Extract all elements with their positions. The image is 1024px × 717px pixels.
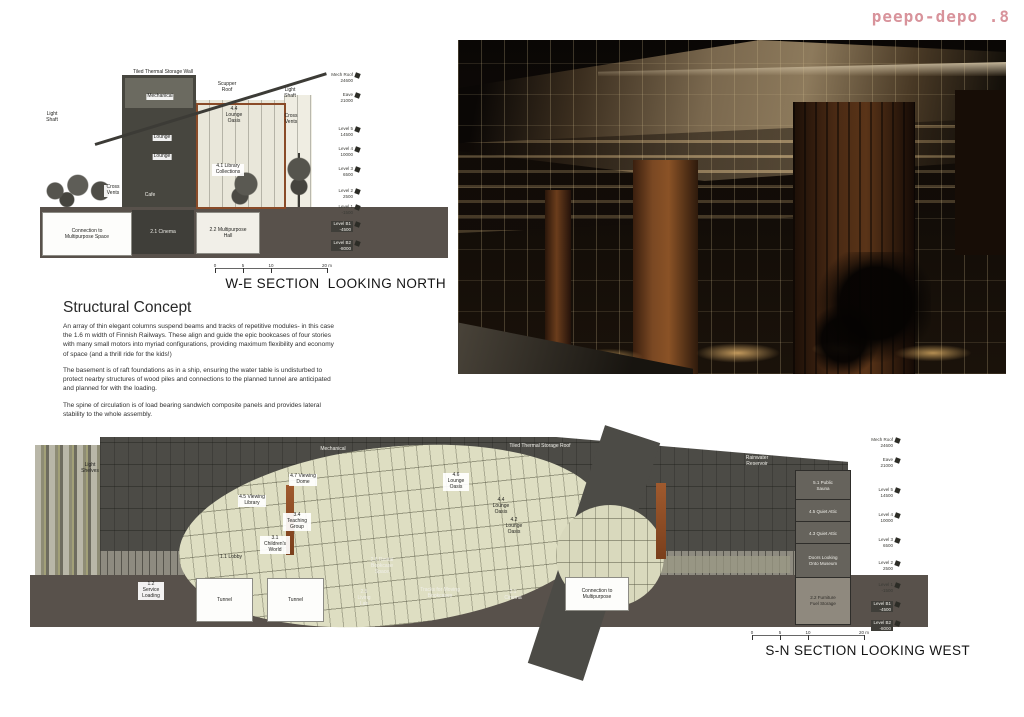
sn-scale-bar: 051020 m — [752, 628, 882, 641]
level-label: Level B1-4500 — [871, 601, 893, 612]
we-level-ladder: Mech Roof24600Eave21000Level 514500Level… — [300, 68, 360, 258]
level-marker-icon — [894, 582, 900, 588]
label-connection-multipurpose: Connection to Multipurpose Space — [61, 228, 113, 240]
we-scale-bar: 051020 m — [215, 261, 345, 274]
label-furniture-storage: 2.2 Furniture Fuel Storage — [806, 595, 840, 606]
level-marker-mech-roof: Mech Roof24600 — [871, 437, 900, 448]
level-marker-level-5: Level 514500 — [878, 487, 900, 498]
level-marker-icon — [894, 487, 900, 493]
label-multipurpose-hall: 2.2 Multipurpose Hall — [206, 227, 250, 239]
sn-tunnel-box-1: Tunnel — [196, 578, 253, 622]
label-light-shaft-right: Light Shaft — [282, 88, 298, 100]
level-marker-icon — [894, 537, 900, 543]
label-childrens-world: 3.1 Children's World — [260, 536, 290, 554]
structural-paragraph-1: An array of thin elegant columns suspend… — [63, 322, 337, 359]
level-label: Level 514500 — [878, 487, 893, 498]
sn-rust-strip-right — [656, 483, 666, 559]
project-logo: peepo-depo .8 — [872, 7, 1010, 26]
level-label: Level 1-1500 — [878, 582, 893, 593]
scale-tick-label: 20 m — [859, 630, 869, 635]
level-marker-icon — [354, 166, 360, 172]
label-scupper-roof: Scupper Roof — [216, 82, 238, 94]
we-basement-connection-box: Connection to Multipurpose Space — [42, 212, 132, 256]
level-marker-icon — [354, 126, 360, 132]
label-thermal-wall: Tiled Thermal Storage Wall — [133, 70, 193, 76]
scale-tick: 5 — [780, 635, 781, 640]
label-lounge-oasis-1: 4.6 Lounge Oasis — [443, 473, 469, 491]
sn-tunnel-box-2: Tunnel — [267, 578, 324, 622]
scale-tick: 20 m — [327, 268, 328, 273]
level-marker-level-3: Level 36500 — [338, 166, 360, 177]
level-label: Eave21000 — [340, 92, 353, 103]
structural-paragraph-2: The basement is of raft foundations as i… — [63, 366, 337, 394]
scale-tick-label: 10 — [268, 263, 273, 268]
level-marker-icon — [354, 72, 360, 78]
label-tracks-bookcases: Tracks for Moving Bookcases — [419, 588, 461, 600]
scale-tick-label: 20 m — [322, 263, 332, 268]
level-label: Level 1-1500 — [338, 204, 353, 215]
scale-tick-label: 0 — [214, 263, 217, 268]
label-lounge-2: Lounge — [153, 154, 172, 160]
label-mechanical-sn: Mechanical — [320, 447, 345, 453]
level-marker-icon — [894, 601, 900, 607]
level-label: Level 36500 — [878, 537, 893, 548]
photo-right-dark-panel — [955, 90, 1006, 255]
level-label: Eave21000 — [880, 457, 893, 468]
level-label: Level B1-4500 — [331, 221, 353, 232]
structural-paragraph-3: The spine of circulation is of load bear… — [63, 401, 337, 419]
label-lounge-oasis-3: 4.2 Lounge Oasis — [502, 518, 526, 536]
label-rainwater-reservoir: Rainwater Reservoir — [740, 456, 774, 468]
level-marker-icon — [354, 188, 360, 194]
label-library-collections: 4.1 Library Collections — [212, 164, 244, 176]
level-marker-level-b2: Level B2-8000 — [331, 240, 360, 251]
level-label: Level 410000 — [878, 512, 893, 523]
label-doors-museum: Doors Looking Onto Museum — [806, 555, 840, 566]
scale-tick-label: 5 — [779, 630, 782, 635]
level-marker-icon — [894, 457, 900, 463]
label-tunnel-1: Tunnel — [217, 597, 232, 603]
label-mechanical: Mechanical — [146, 94, 173, 100]
night-render-photo — [458, 40, 1006, 374]
label-cross-vents-right: Cross Vents — [283, 114, 299, 126]
level-label: Mech Roof24600 — [871, 437, 893, 448]
level-label: Level B2-8000 — [331, 240, 353, 251]
label-teaching-group: 3.4 Teaching Group — [283, 513, 311, 531]
level-marker-level-3: Level 36500 — [878, 537, 900, 548]
label-light-shaft-left: Light Shaft — [44, 112, 60, 124]
label-light-shelves: Light Shelves — [78, 463, 102, 475]
level-marker-level-1: Level 1-1500 — [338, 204, 360, 215]
label-rental-bookcase: 2.6 Rental Bookcase Space — [366, 558, 398, 576]
label-public-sauna: 5.1 Public Sauna — [806, 480, 840, 491]
scale-tick: 0 — [752, 635, 753, 640]
level-marker-level-4: Level 410000 — [878, 512, 900, 523]
level-label: Level 514500 — [338, 126, 353, 137]
level-marker-icon — [894, 512, 900, 518]
label-quiet-attic-2: 4.3 Quiet Attic — [808, 531, 838, 537]
level-marker-icon — [894, 437, 900, 443]
structural-concept-body: An array of thin elegant columns suspend… — [63, 322, 337, 426]
label-cinema: 2.1 Cinema — [150, 229, 176, 235]
level-marker-icon — [354, 221, 360, 227]
level-label: Level 410000 — [338, 146, 353, 157]
level-marker-level-2: Level 22500 — [878, 560, 900, 571]
label-living-lab: 2.5 Living Lab — [355, 590, 373, 608]
label-service-loading: 1.2 Service Loading — [138, 582, 164, 600]
label-viewing-library: 4.5 Viewing Library — [238, 495, 266, 507]
level-marker-eave: Eave21000 — [340, 92, 360, 103]
level-marker-level-4: Level 410000 — [338, 146, 360, 157]
level-marker-level-5: Level 514500 — [338, 126, 360, 137]
level-marker-level-1: Level 1-1500 — [878, 582, 900, 593]
scale-tick-label: 10 — [805, 630, 810, 635]
scale-tick: 20 m — [864, 635, 865, 640]
level-marker-icon — [894, 560, 900, 566]
label-lounge-1: Lounge — [153, 135, 172, 141]
label-thermal-roof: Tiled Thermal Storage Roof — [509, 444, 570, 450]
level-marker-icon — [354, 240, 360, 246]
label-lounge-oasis-2: 4.4 Lounge Oasis — [489, 498, 513, 516]
label-viewing-dome: 4.7 Viewing Dome — [289, 474, 317, 486]
level-label: Level 22500 — [878, 560, 893, 571]
level-marker-level-b1: Level B1-4500 — [331, 221, 360, 232]
level-marker-mech-roof: Mech Roof24600 — [331, 72, 360, 83]
label-cinema-sn: 2.1 Cinema — [502, 590, 524, 602]
scale-tick: 5 — [243, 268, 244, 273]
scale-tick-label: 5 — [242, 263, 245, 268]
we-basement-hall-box: 2.2 Multipurpose Hall — [196, 212, 260, 254]
level-marker-eave: Eave21000 — [880, 457, 900, 468]
scale-tick-label: 0 — [751, 630, 754, 635]
level-marker-level-2: Level 22500 — [338, 188, 360, 199]
level-label: Level 22500 — [338, 188, 353, 199]
level-marker-icon — [894, 620, 900, 626]
scale-tick: 0 — [215, 268, 216, 273]
label-cross-vents-left: Cross Vents — [104, 185, 122, 197]
we-basement-cinema-box: 2.1 Cinema — [132, 210, 194, 254]
label-lobby: 1.1 Lobby — [220, 555, 242, 561]
level-marker-icon — [354, 146, 360, 152]
label-lounge-oasis: 4.4 Lounge Oasis — [222, 107, 246, 125]
sn-level-ladder: Mech Roof24600Eave21000Level 514500Level… — [840, 432, 900, 632]
level-marker-icon — [354, 204, 360, 210]
sn-section-caption: S-N SECTION LOOKING WEST — [765, 643, 970, 658]
level-marker-level-b1: Level B1-4500 — [871, 601, 900, 612]
scale-tick: 10 — [808, 635, 809, 640]
structural-concept-heading: Structural Concept — [63, 299, 191, 317]
label-cafe: Cafe — [145, 193, 156, 199]
label-quiet-attic-1: 4.5 Quiet Attic — [808, 509, 838, 515]
we-section-caption: W-E SECTION LOOKING NORTH — [225, 276, 446, 291]
level-label: Mech Roof24600 — [331, 72, 353, 83]
label-tunnel-2: Tunnel — [288, 597, 303, 603]
scale-tick: 10 — [271, 268, 272, 273]
level-marker-icon — [354, 92, 360, 98]
presentation-board: { "logo": { "text": "peepo-depo .8", "co… — [0, 0, 1024, 717]
photo-tree-silhouette — [816, 252, 931, 374]
level-label: Level 36500 — [338, 166, 353, 177]
sn-connection-box: Connection to Multipurpose — [565, 577, 629, 611]
label-connection-sn: Connection to Multipurpose — [574, 588, 620, 600]
